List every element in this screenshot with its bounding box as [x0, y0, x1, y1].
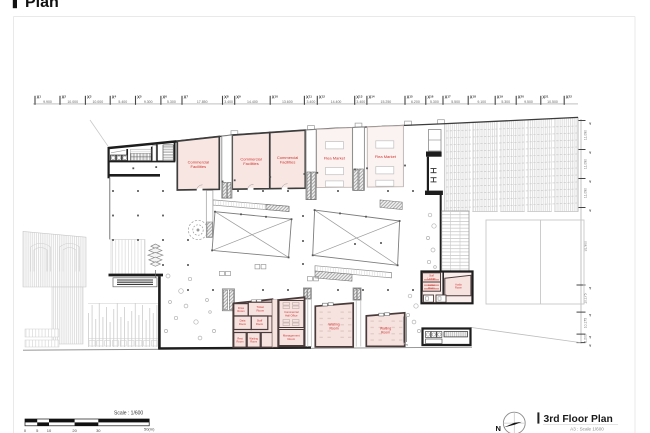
svg-text:2.200: 2.200 [584, 334, 588, 343]
svg-text:14.400: 14.400 [247, 100, 258, 104]
svg-text:10.000: 10.000 [92, 100, 103, 104]
svg-text:10: 10 [47, 428, 52, 433]
svg-text:5.300: 5.300 [167, 100, 176, 104]
svg-text:20: 20 [72, 428, 77, 433]
svg-text:Flea Market: Flea Market [324, 155, 346, 160]
svg-text:5.500: 5.500 [451, 100, 460, 104]
svg-text:Flea Market: Flea Market [375, 154, 397, 159]
svg-text:Room: Room [455, 286, 462, 290]
svg-text:5.300: 5.300 [501, 100, 510, 104]
svg-text:Room: Room [428, 287, 434, 290]
svg-text:Room: Room [256, 309, 264, 313]
svg-text:14.400: 14.400 [331, 100, 342, 104]
svg-text:6.200: 6.200 [411, 100, 420, 104]
svg-text:11.090: 11.090 [584, 159, 588, 169]
svg-text:3.400: 3.400 [356, 100, 365, 104]
svg-text:Hall Office: Hall Office [285, 313, 298, 317]
svg-text:13.600: 13.600 [282, 100, 293, 104]
svg-text:5.300: 5.300 [430, 100, 439, 104]
svg-text:30: 30 [96, 428, 101, 433]
svg-text:Lounge: Lounge [428, 278, 437, 281]
svg-text:10.500: 10.500 [547, 100, 558, 104]
svg-text:3.400: 3.400 [224, 100, 233, 104]
svg-text:10.000: 10.000 [67, 100, 78, 104]
svg-text:3rd Floor Plan: 3rd Floor Plan [544, 414, 613, 425]
svg-text:Room: Room [329, 327, 338, 331]
svg-text:A3 : Scale 1/600: A3 : Scale 1/600 [570, 427, 604, 432]
svg-text:11.090: 11.090 [584, 130, 588, 140]
svg-text:5.400: 5.400 [118, 100, 127, 104]
svg-text:Scale : 1/600: Scale : 1/600 [114, 411, 143, 417]
svg-text:Facilities: Facilities [191, 164, 207, 169]
svg-text:3.400: 3.400 [307, 100, 316, 104]
svg-text:15.250: 15.250 [381, 100, 392, 104]
svg-text:9.100: 9.100 [477, 100, 486, 104]
svg-text:9.300: 9.300 [144, 100, 153, 104]
svg-text:Facilities: Facilities [243, 161, 259, 166]
svg-text:10.175: 10.175 [584, 318, 588, 328]
svg-text:Facilities: Facilities [280, 160, 296, 165]
svg-text:11.090: 11.090 [584, 188, 588, 198]
svg-text:Room: Room [381, 331, 390, 335]
svg-text:Plan: Plan [25, 0, 59, 11]
svg-text:9.900: 9.900 [43, 100, 52, 104]
svg-text:N: N [496, 424, 501, 433]
svg-text:Room: Room [287, 337, 295, 341]
svg-text:Room: Room [239, 322, 247, 326]
svg-text:50(m): 50(m) [144, 427, 155, 432]
svg-text:Room: Room [237, 339, 244, 343]
svg-text:Room: Room [256, 322, 264, 326]
svg-text:Room: Room [250, 339, 257, 343]
svg-text:Room: Room [237, 309, 245, 313]
svg-text:17.850: 17.850 [197, 100, 208, 104]
svg-text:9.500: 9.500 [524, 100, 533, 104]
